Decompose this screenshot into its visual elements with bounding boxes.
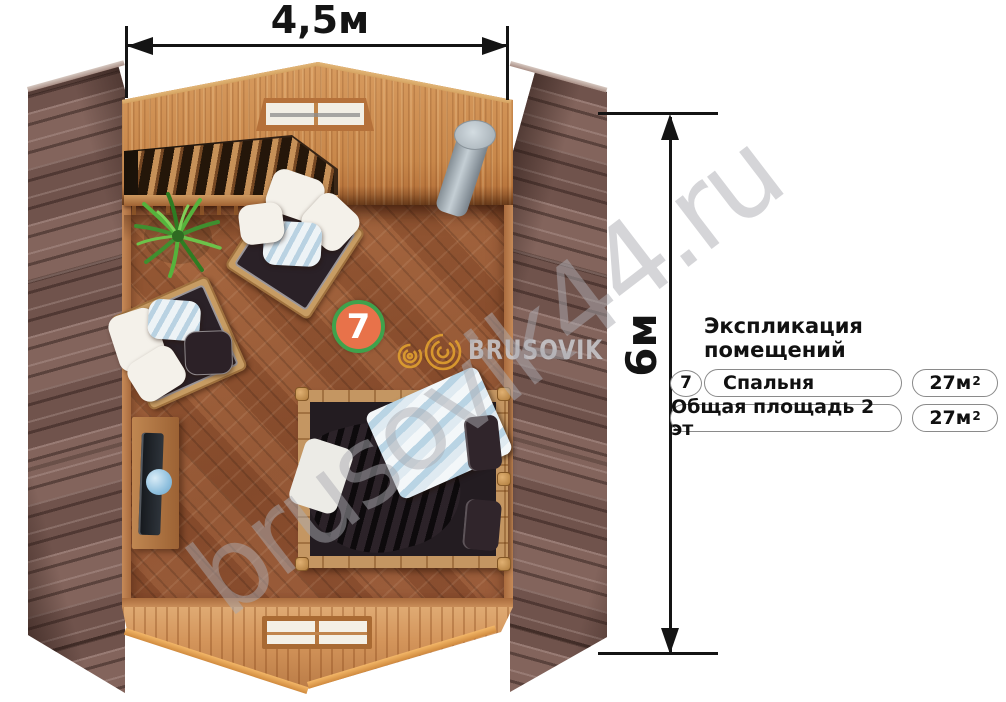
bed-post <box>497 557 511 571</box>
width-dimension-label: 4,5м <box>238 0 402 42</box>
legend-row-total: Общая площадь 2 эт 27м2 <box>670 404 1006 432</box>
tv-console <box>132 417 179 549</box>
bed-post <box>295 387 309 401</box>
bed-pillow <box>462 499 502 552</box>
legend-row-bedroom: 7 Спальня 27м2 <box>670 369 1006 397</box>
width-extension-line-left <box>125 26 128 98</box>
bottom-window-panes <box>267 621 367 644</box>
area-value: 27м <box>929 407 971 429</box>
arrowhead-left-icon <box>127 37 153 55</box>
white-pillow <box>237 201 286 246</box>
bed-post <box>497 387 511 401</box>
legend-room-area: 27м2 <box>912 369 998 397</box>
height-extension-line-top <box>598 112 718 115</box>
bed-pillow <box>463 414 502 471</box>
potted-plant <box>128 186 228 286</box>
width-extension-line-right <box>506 26 509 100</box>
roof-panel-left <box>25 60 125 698</box>
legend-title: Экспликация помещений <box>704 314 1006 362</box>
double-bed <box>298 390 508 568</box>
legend-total-name: Общая площадь 2 эт <box>670 404 902 432</box>
legend-panel: Экспликация помещений 7 Спальня 27м2 Общ… <box>670 312 1006 432</box>
area-value: 27м <box>929 372 971 394</box>
gable-window <box>256 98 374 131</box>
eave-board-right <box>316 58 512 104</box>
brand-logo-text: BRUSOVIK <box>468 335 603 366</box>
room-number-badge: 7 <box>332 300 385 353</box>
window-mullion <box>267 632 367 635</box>
area-superscript: 2 <box>972 374 980 388</box>
window-bar <box>270 113 360 117</box>
legend-room-number: 7 <box>670 370 702 397</box>
height-extension-line-bottom <box>598 652 718 655</box>
chimney-cap <box>454 120 496 150</box>
brand-logo-rings-icon <box>395 326 467 378</box>
roof-panel-right <box>510 60 610 698</box>
gable-window-panes <box>266 103 364 125</box>
area-superscript: 2 <box>972 409 980 423</box>
width-dimension-line <box>127 44 508 47</box>
bed-post <box>295 557 309 571</box>
bedroom-floor: 7 BRUSOVIK <box>122 205 513 607</box>
dark-pillow <box>184 330 234 376</box>
legend-total-area: 27м2 <box>912 404 998 432</box>
bed-post <box>497 472 511 486</box>
arrowhead-right-icon <box>482 37 508 55</box>
arrowhead-up-icon <box>661 114 679 140</box>
arrowhead-down-icon <box>661 628 679 654</box>
height-dimension-label: 6м <box>612 295 672 395</box>
floor-plan-canvas: 4,5м 6м <box>0 0 1006 702</box>
chimney-pipe <box>440 118 520 233</box>
legend-room-name: Спальня <box>704 369 902 397</box>
eave-board-left <box>121 58 317 104</box>
decor-ball <box>146 469 172 495</box>
bottom-window <box>262 616 372 649</box>
wall-bottom <box>122 598 513 607</box>
